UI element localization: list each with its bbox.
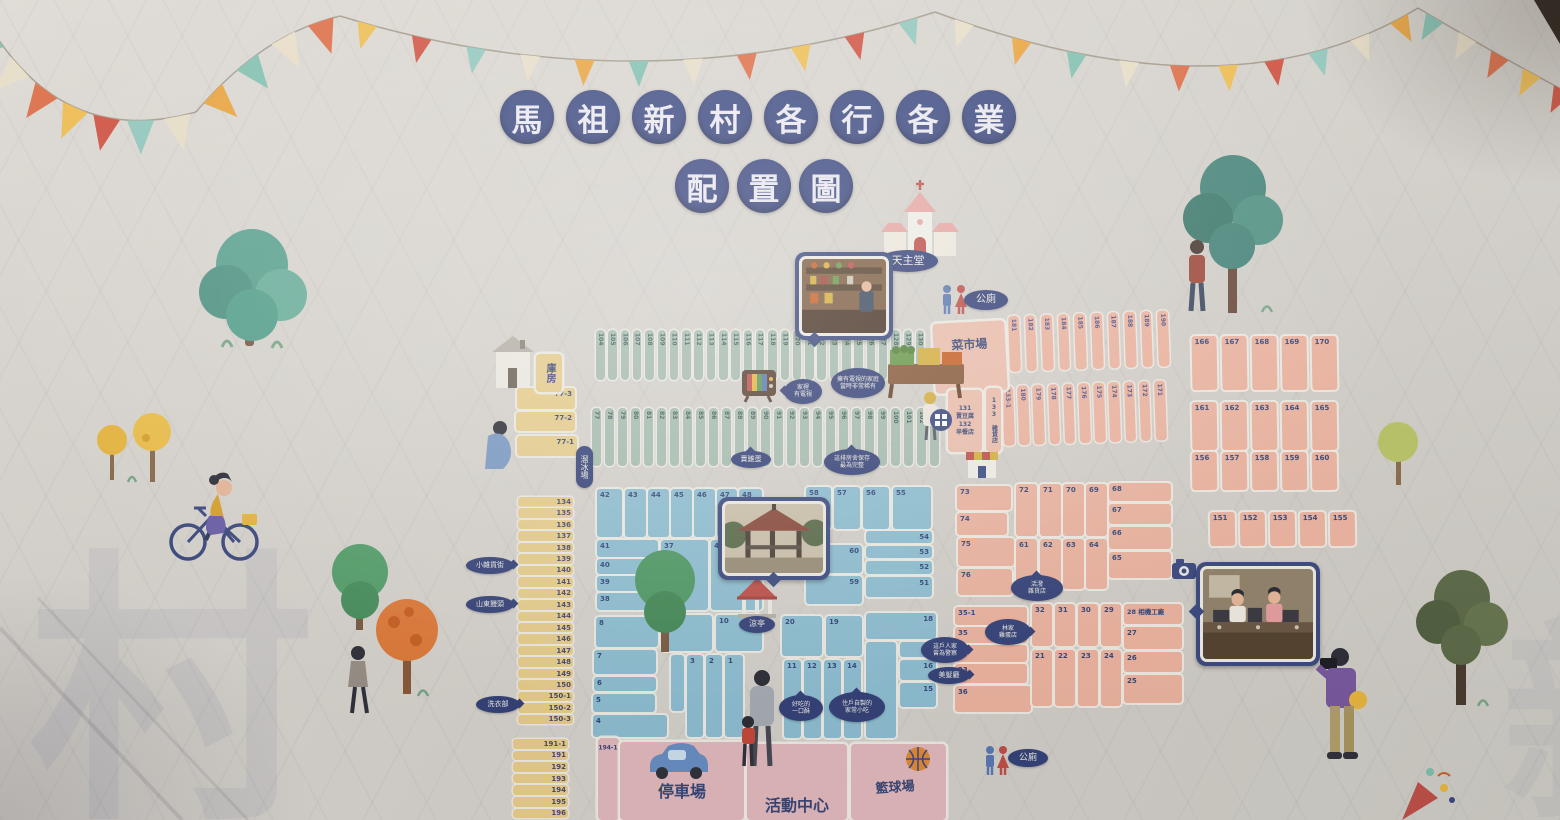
title-character: 馬 — [500, 90, 554, 144]
photo-mat — [1200, 566, 1316, 662]
title-character: 置 — [737, 159, 791, 213]
bubble-mantou-tail — [509, 599, 519, 609]
toilet-label-bottom: 公廁 — [1008, 749, 1048, 767]
bubble-salon: 美髮廳 — [928, 667, 970, 684]
bubble-egg-shop-tail — [1026, 627, 1036, 637]
bubble-snack-2-tail — [852, 688, 862, 698]
bubble-grocery-street: 小雜貨街 — [466, 557, 514, 574]
bubble-tv-home-tail — [780, 386, 790, 396]
photo-pavilion-image — [725, 504, 823, 573]
bubble-laundry: 洗衣部 — [476, 696, 520, 713]
title-character: 行 — [830, 90, 884, 144]
bubble-snack-1-tail — [796, 691, 806, 701]
bubble-tv-home: 家裡有電視 — [784, 379, 822, 404]
photo-shop-image — [802, 259, 886, 333]
title-character: 業 — [962, 90, 1016, 144]
toilet-label-top: 公廁 — [964, 290, 1008, 310]
bubble-row-note: 這排房舍保存最為完整 — [824, 449, 880, 475]
bubble-grocery-shop: 活潑雜貨店 — [1011, 575, 1063, 601]
poster-title-line1: 馬祖新村各行各業 — [500, 90, 1016, 144]
bubble-egg-shop: 林家雞蛋店 — [985, 619, 1031, 645]
bubble-grocery-shop-tail — [1032, 571, 1042, 581]
title-character: 各 — [764, 90, 818, 144]
bubble-eggs: 賣雞蛋 — [731, 451, 771, 468]
photo-workshop-image — [1203, 569, 1313, 659]
bubble-snack-1: 好吃的一口酥 — [779, 695, 823, 721]
bubble-laundry-tail — [515, 699, 525, 709]
skating-rink-label: 溜冰場 — [576, 446, 593, 488]
bubble-mantou: 山東饅頭 — [466, 596, 514, 613]
title-character: 新 — [632, 90, 686, 144]
bubble-tv-rare: 擁有電視的家庭當時非常稀有 — [831, 368, 885, 398]
photo-corner-shadow — [1534, 0, 1560, 44]
title-character: 配 — [675, 159, 729, 213]
photo-callout-pavilion — [718, 497, 830, 580]
pavilion-label: 涼亭 — [739, 616, 775, 633]
title-character: 圖 — [799, 159, 853, 213]
title-character: 祖 — [566, 90, 620, 144]
title-character: 村 — [698, 90, 752, 144]
bubble-police-house: 這戶人家曾為警察 — [921, 637, 969, 663]
bubble-salon-tail — [965, 670, 975, 680]
title-character: 各 — [896, 90, 950, 144]
photo-callout-shop — [795, 252, 893, 340]
bubble-grocery-street-tail — [509, 560, 519, 570]
photo-mat — [799, 256, 889, 336]
bubble-row-note-tail — [847, 445, 857, 455]
poster-title-line2: 配置圖 — [675, 159, 853, 213]
bubble-snack-2: 住戶自製的家常小吃 — [829, 692, 885, 722]
photo-callout-camera-factory — [1196, 562, 1320, 666]
photo-mat — [722, 501, 826, 576]
bubble-police-house-tail — [964, 645, 974, 655]
